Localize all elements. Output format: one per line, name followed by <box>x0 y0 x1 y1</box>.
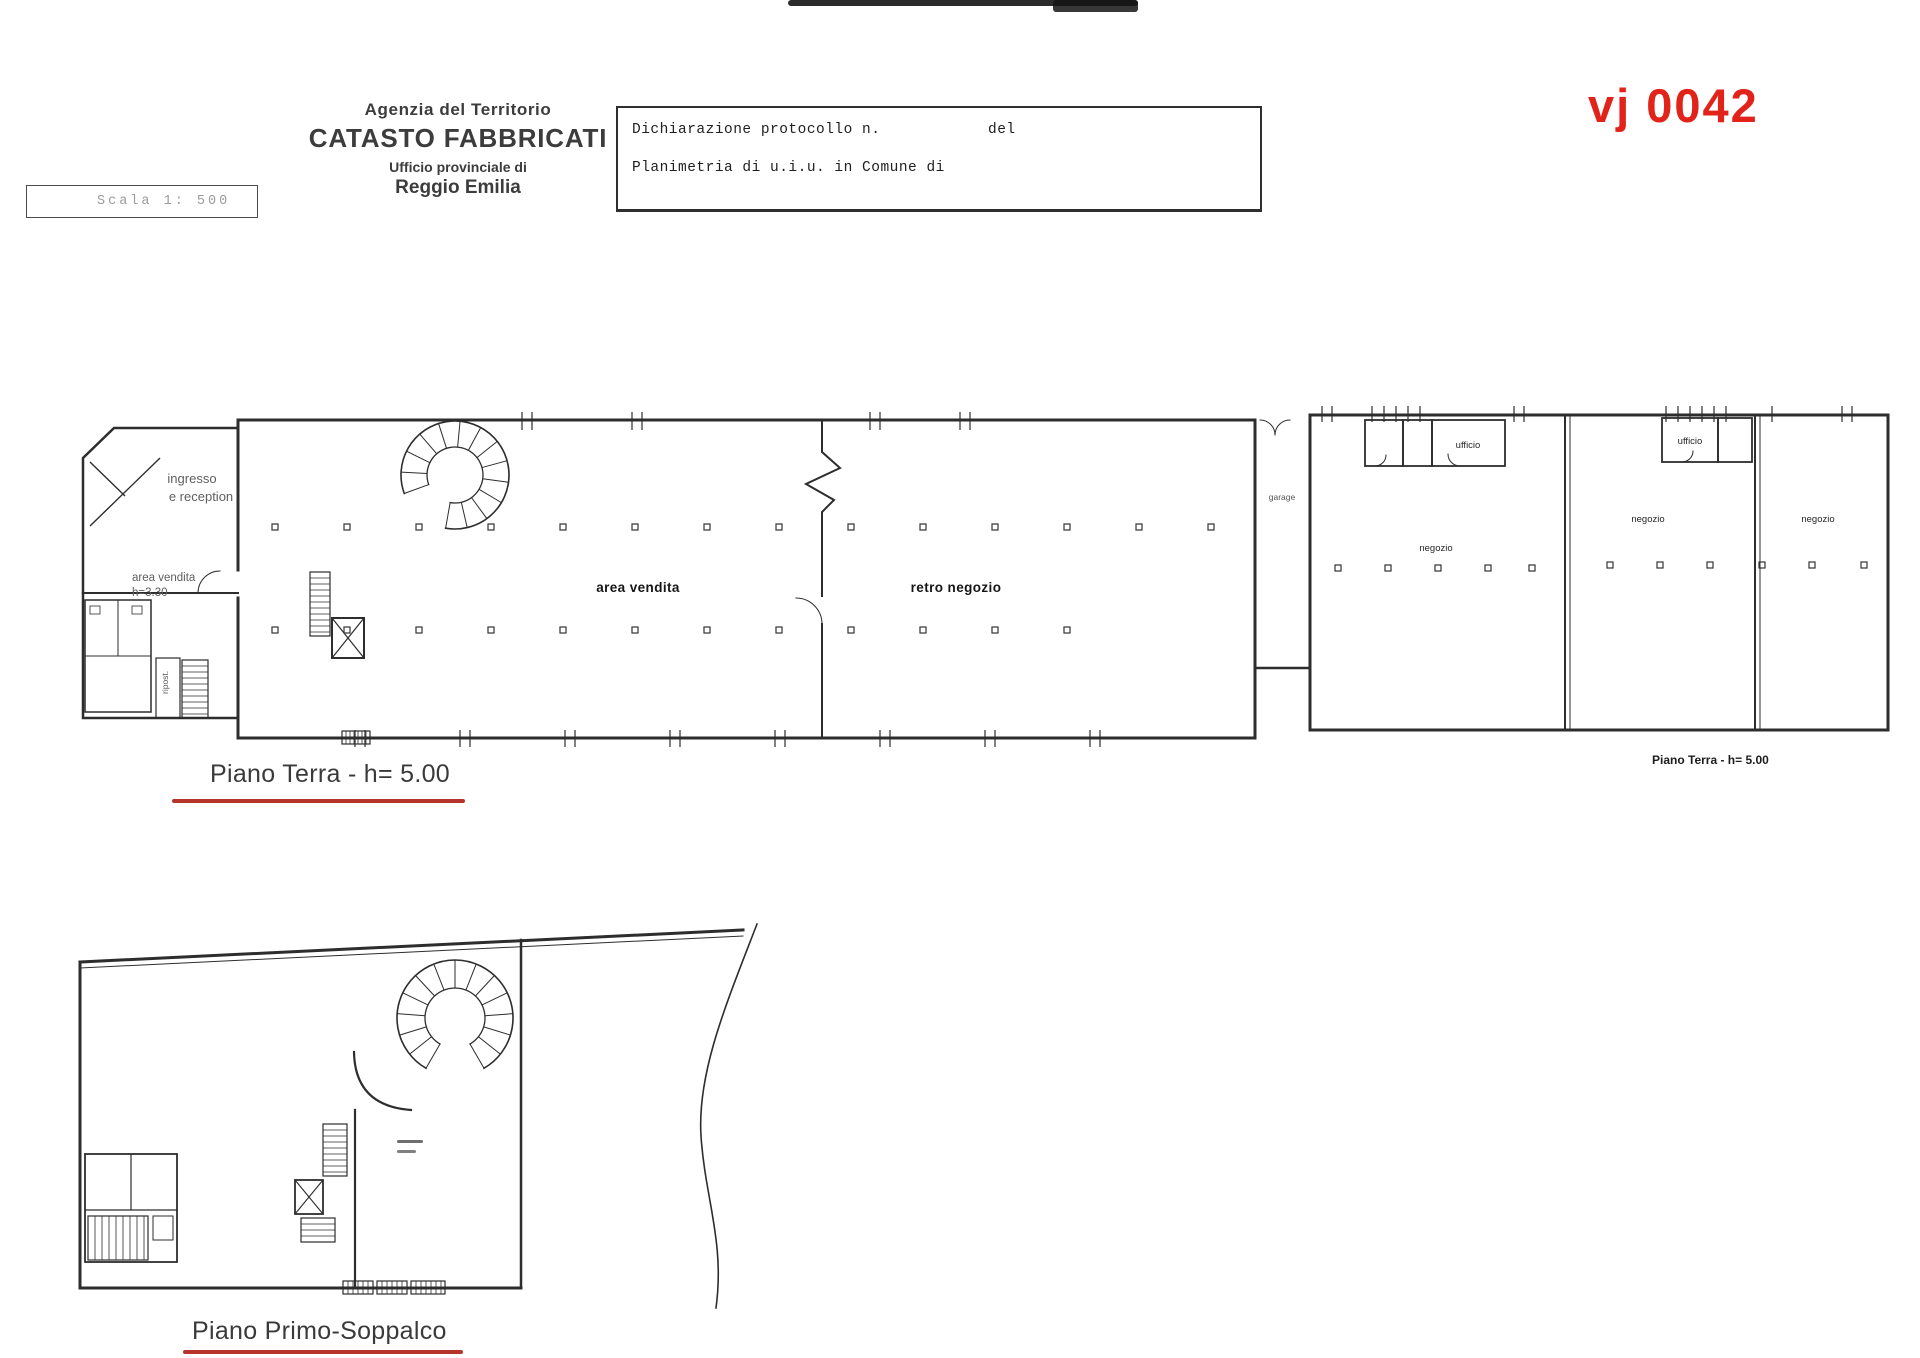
label-negozio-b: negozio <box>1631 514 1664 525</box>
label-retro-negozio: retro negozio <box>911 580 1002 595</box>
label-area-vendita-small-2: h=3.30 <box>132 587 168 599</box>
label-negozio-a: negozio <box>1419 543 1452 554</box>
title-piano-primo-soppalco: Piano Primo-Soppalco <box>192 1317 447 1346</box>
agency-line-1: Agenzia del Territorio <box>288 100 628 120</box>
title-piano-terra-right: Piano Terra - h= 5.00 <box>1652 753 1769 767</box>
agency-header: Agenzia del Territorio CATASTO FABBRICAT… <box>288 100 628 199</box>
protocol-planimetria-label: Planimetria di u.i.u. in Comune di <box>632 160 945 176</box>
scale-box: Scala 1: 500 <box>26 185 258 218</box>
protocol-box: Dichiarazione protocollo n. del Planimet… <box>616 106 1262 212</box>
label-area-vendita: area vendita <box>596 580 680 595</box>
agency-line-4: Reggio Emilia <box>288 177 628 199</box>
scanned-cadastral-document: { "document": { "stamp": "vj 0042", "sca… <box>0 0 1920 1358</box>
title-piano-terra: Piano Terra - h= 5.00 <box>210 760 450 789</box>
scan-artifact-blob <box>1053 0 1138 12</box>
mezzanine-floor-plan <box>55 910 775 1310</box>
title-piano-primo-underline <box>183 1350 463 1354</box>
title-piano-terra-underline <box>172 799 465 803</box>
ground-floor-walls <box>83 406 1888 747</box>
ground-floor-plan: ingresso e reception area vendita h=3.30… <box>70 400 1900 760</box>
agency-line-3: Ufficio provinciale di <box>288 159 628 175</box>
label-ufficio-a: ufficio <box>1456 440 1481 451</box>
label-garage: garage <box>1269 492 1296 502</box>
label-negozio-c: negozio <box>1801 514 1834 525</box>
label-ingresso-2: e reception <box>169 489 233 504</box>
scale-label: Scala 1: 500 <box>97 194 230 209</box>
protocol-del-label: del <box>988 122 1016 138</box>
agency-line-2: CATASTO FABBRICATI <box>288 123 628 154</box>
label-area-vendita-small-1: area vendita <box>132 572 196 584</box>
label-ripostiglio: ripost. <box>160 671 170 694</box>
label-ingresso-1: ingresso <box>167 471 216 486</box>
reference-stamp: vj 0042 <box>1588 78 1759 133</box>
label-ufficio-b: ufficio <box>1678 436 1703 447</box>
mezzanine-walls <box>80 924 757 1308</box>
protocol-declaration-label: Dichiarazione protocollo n. <box>632 122 880 138</box>
